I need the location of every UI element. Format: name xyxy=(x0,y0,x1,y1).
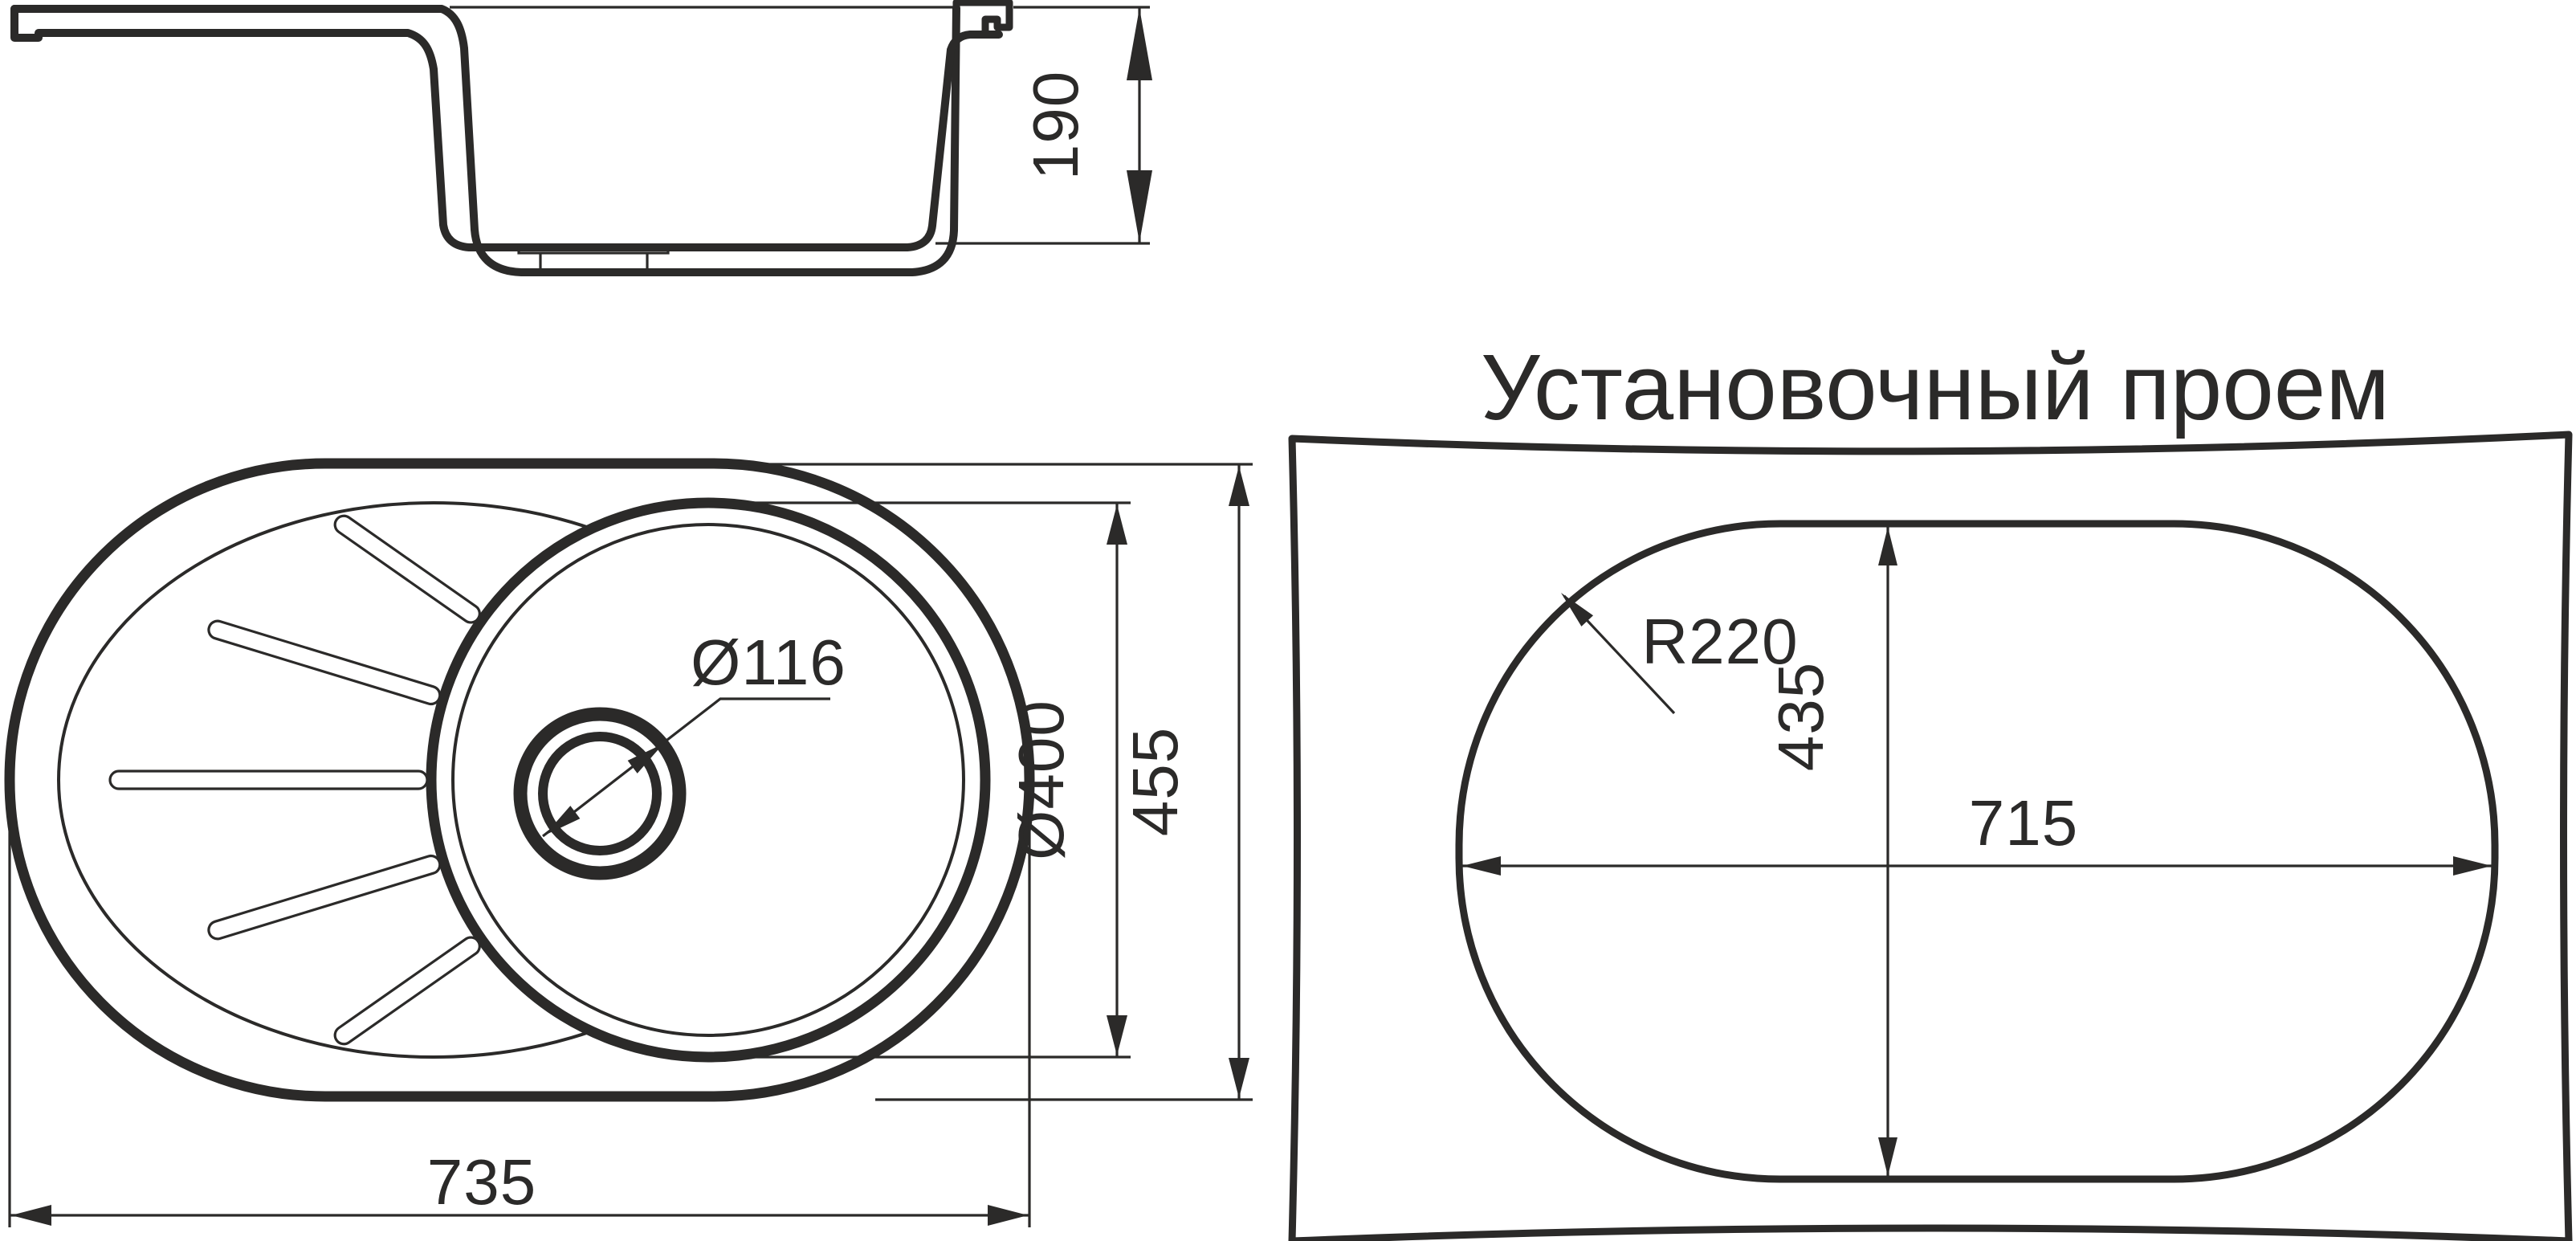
dim-drain-label: Ø116 xyxy=(691,627,846,698)
dim-190: 190 xyxy=(1020,7,1152,243)
dim-455-arrow-up xyxy=(1229,466,1249,506)
dim-715: 715 xyxy=(1459,787,2495,876)
sink-inner-bowl-profile xyxy=(14,9,999,247)
dim-bowl-arrow-down xyxy=(1107,1015,1127,1055)
bowl-outline xyxy=(431,503,985,1057)
sink-outer-shell-profile xyxy=(14,8,956,272)
dim-bowl-label: Ø400 xyxy=(1005,700,1077,860)
sink-dimension-drawing: 190 Ø116 xyxy=(0,0,2576,1241)
dim-190-arrow-up xyxy=(1127,8,1152,80)
dim-455-label: 455 xyxy=(1119,727,1191,836)
dim-735-arrow-left xyxy=(11,1205,51,1226)
dim-435-arrow-down xyxy=(1878,1137,1897,1176)
countertop-panel xyxy=(1292,435,2569,1241)
installation-opening-view: Установочный проем R220 435 715 xyxy=(1292,335,2569,1241)
opening-view-title: Установочный проем xyxy=(1481,335,2390,439)
dim-715-arrow-right xyxy=(2453,856,2492,876)
dim-190-arrow-down xyxy=(1127,170,1152,243)
dim-435-arrow-up xyxy=(1878,527,1897,565)
side-section-view: 190 xyxy=(14,2,1152,272)
dim-715-arrow-left xyxy=(1462,856,1501,876)
dim-455-arrow-down xyxy=(1229,1058,1249,1098)
technical-drawing-page: 190 Ø116 xyxy=(0,0,2576,1241)
top-view: Ø116 Ø400 455 735 xyxy=(10,463,1253,1227)
dim-735-label: 735 xyxy=(427,1146,536,1218)
dim-190-label: 190 xyxy=(1020,71,1091,180)
dim-715-label: 715 xyxy=(1969,787,2078,859)
dim-435-label: 435 xyxy=(1765,662,1836,771)
dim-bowl-arrow-up xyxy=(1107,504,1127,545)
dim-radius: R220 xyxy=(1555,587,1799,713)
dim-735-arrow-right xyxy=(988,1205,1028,1226)
